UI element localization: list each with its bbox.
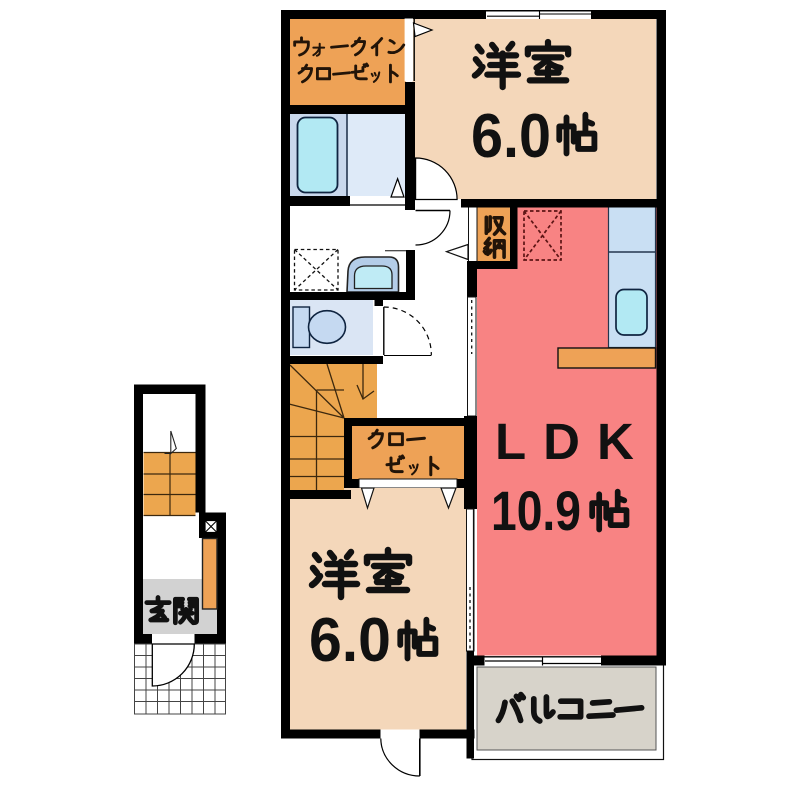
svg-text:6.0: 6.0 (309, 606, 391, 675)
svg-text:10.9: 10.9 (491, 479, 581, 542)
svg-text:6.0: 6.0 (471, 102, 551, 171)
svg-text:LDK: LDK (495, 413, 651, 470)
